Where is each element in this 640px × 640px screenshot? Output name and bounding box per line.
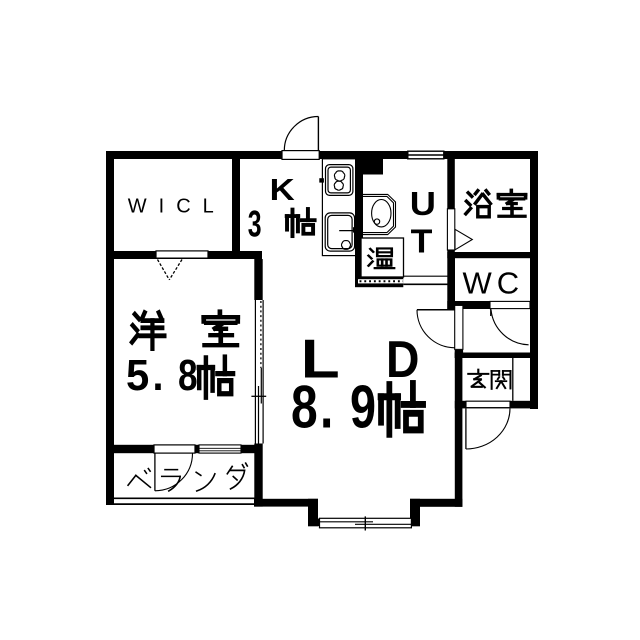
svg-text:WC: WC xyxy=(463,265,525,300)
svg-text:.: . xyxy=(153,350,164,399)
svg-text:8: 8 xyxy=(178,352,198,401)
svg-text:D: D xyxy=(386,330,419,388)
svg-text:K: K xyxy=(270,172,295,207)
svg-text:WICL: WICL xyxy=(128,195,226,217)
svg-text:.: . xyxy=(320,373,333,440)
svg-text:8: 8 xyxy=(291,373,318,440)
svg-text:T: T xyxy=(411,224,433,261)
svg-text:U: U xyxy=(410,186,436,222)
svg-text:9: 9 xyxy=(350,374,376,441)
svg-text:3: 3 xyxy=(248,203,262,245)
svg-text:5: 5 xyxy=(126,351,149,400)
